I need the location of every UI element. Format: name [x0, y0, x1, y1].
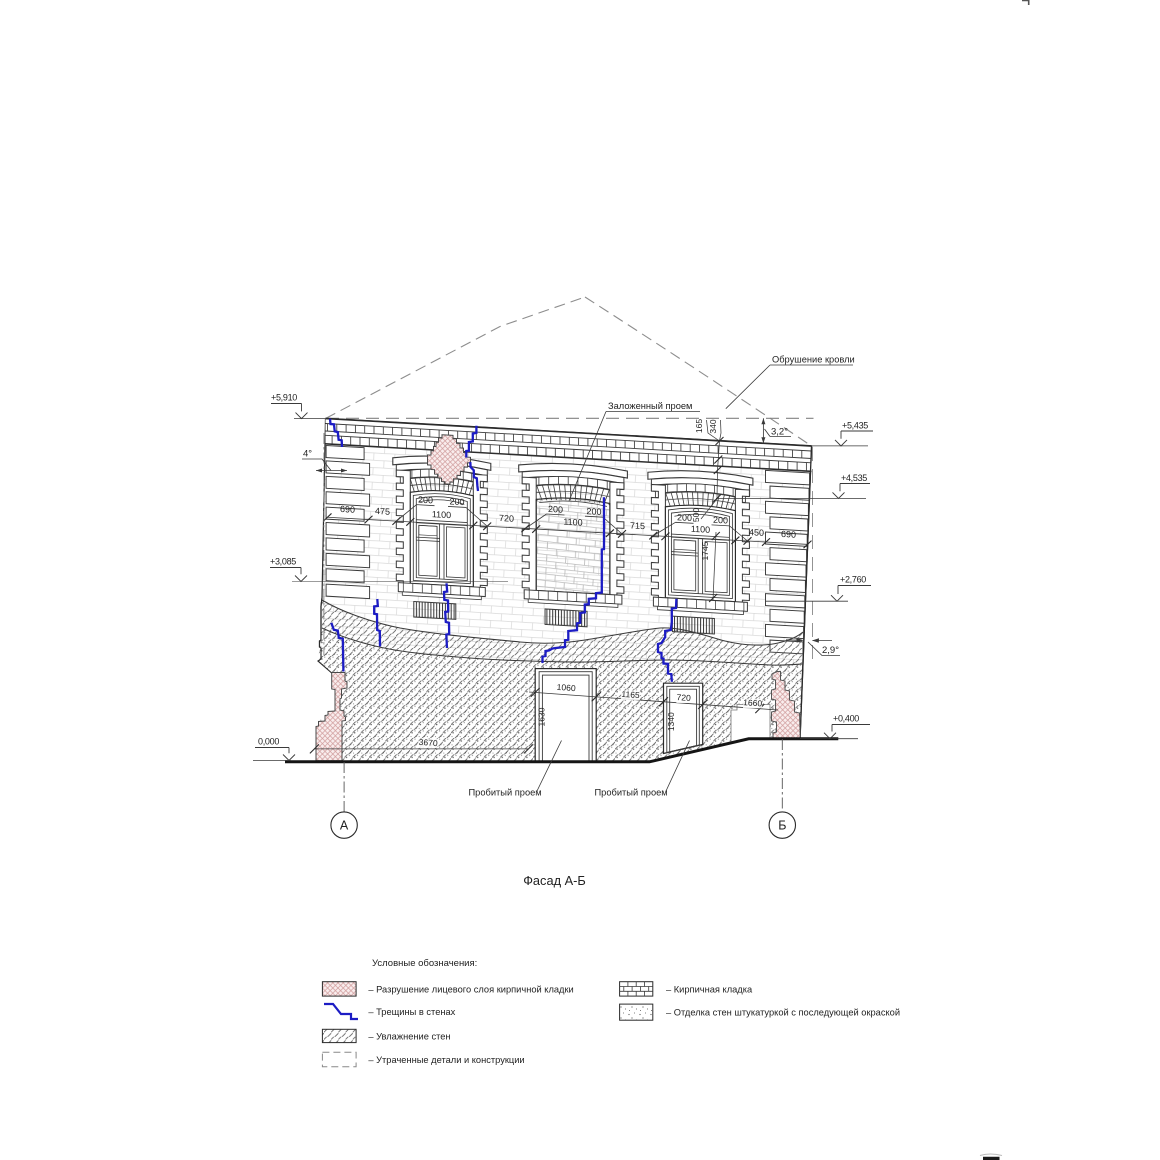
svg-text:500: 500: [691, 508, 701, 522]
svg-text:1630: 1630: [537, 707, 547, 726]
svg-text:0,000: 0,000: [258, 737, 279, 747]
svg-text:Б: Б: [778, 819, 786, 833]
svg-text:3,2°: 3,2°: [771, 427, 788, 438]
svg-text:1165: 1165: [621, 689, 640, 700]
svg-text:Условные обозначения:: Условные обозначения:: [372, 958, 477, 969]
svg-text:200: 200: [548, 504, 563, 515]
svg-text:2,9°: 2,9°: [822, 645, 839, 656]
svg-text:+0,400: +0,400: [833, 714, 859, 724]
svg-text:– Трещины в стенах: – Трещины в стенах: [368, 1007, 455, 1017]
svg-text:450: 450: [749, 527, 764, 538]
svg-text:715: 715: [630, 520, 645, 531]
svg-text:1340: 1340: [666, 712, 676, 731]
svg-text:1660: 1660: [743, 697, 763, 708]
svg-text:1745: 1745: [700, 541, 710, 560]
svg-text:А: А: [340, 819, 349, 833]
svg-text:200: 200: [418, 495, 433, 506]
svg-text:– Разрушение лицевого слоя кир: – Разрушение лицевого слоя кирпичной кла…: [368, 984, 573, 994]
svg-text:690: 690: [781, 529, 796, 540]
svg-text:1100: 1100: [691, 524, 710, 535]
svg-text:1100: 1100: [563, 517, 582, 528]
svg-text:– Утраченные детали и конструк: – Утраченные детали и конструкции: [368, 1055, 524, 1065]
svg-text:1060: 1060: [556, 682, 576, 693]
svg-text:4°: 4°: [303, 449, 312, 460]
svg-text:Заложенный проем: Заложенный проем: [608, 401, 692, 411]
svg-text:– Увлажнение стен: – Увлажнение стен: [368, 1032, 450, 1042]
svg-text:+5,435: +5,435: [842, 421, 868, 431]
svg-text:690: 690: [340, 504, 355, 515]
svg-text:3670: 3670: [418, 737, 438, 748]
svg-text:200: 200: [449, 496, 464, 507]
svg-text:+2,760: +2,760: [840, 575, 866, 585]
svg-text:165: 165: [694, 419, 704, 433]
svg-text:+4,535: +4,535: [841, 473, 867, 483]
svg-text:720: 720: [676, 692, 691, 703]
svg-text:Обрушение кровли: Обрушение кровли: [772, 355, 855, 365]
svg-text:Фасад А-Б: Фасад А-Б: [523, 873, 586, 888]
svg-text:200: 200: [713, 515, 728, 526]
svg-text:720: 720: [499, 513, 514, 524]
svg-text:+5,910: +5,910: [271, 393, 297, 403]
svg-text:+3,085: +3,085: [270, 557, 296, 567]
svg-text:1100: 1100: [432, 509, 451, 520]
svg-text:Пробитый проем: Пробитый проем: [595, 788, 668, 798]
svg-text:340: 340: [708, 419, 718, 433]
svg-text:200: 200: [677, 512, 692, 523]
svg-text:Пробитый проем: Пробитый проем: [469, 788, 542, 798]
svg-text:– Кирпичная кладка: – Кирпичная кладка: [666, 984, 753, 994]
svg-text:475: 475: [375, 506, 390, 517]
svg-text:200: 200: [586, 506, 601, 517]
svg-text:– Отделка стен штукатуркой с п: – Отделка стен штукатуркой с последующей…: [666, 1007, 900, 1017]
